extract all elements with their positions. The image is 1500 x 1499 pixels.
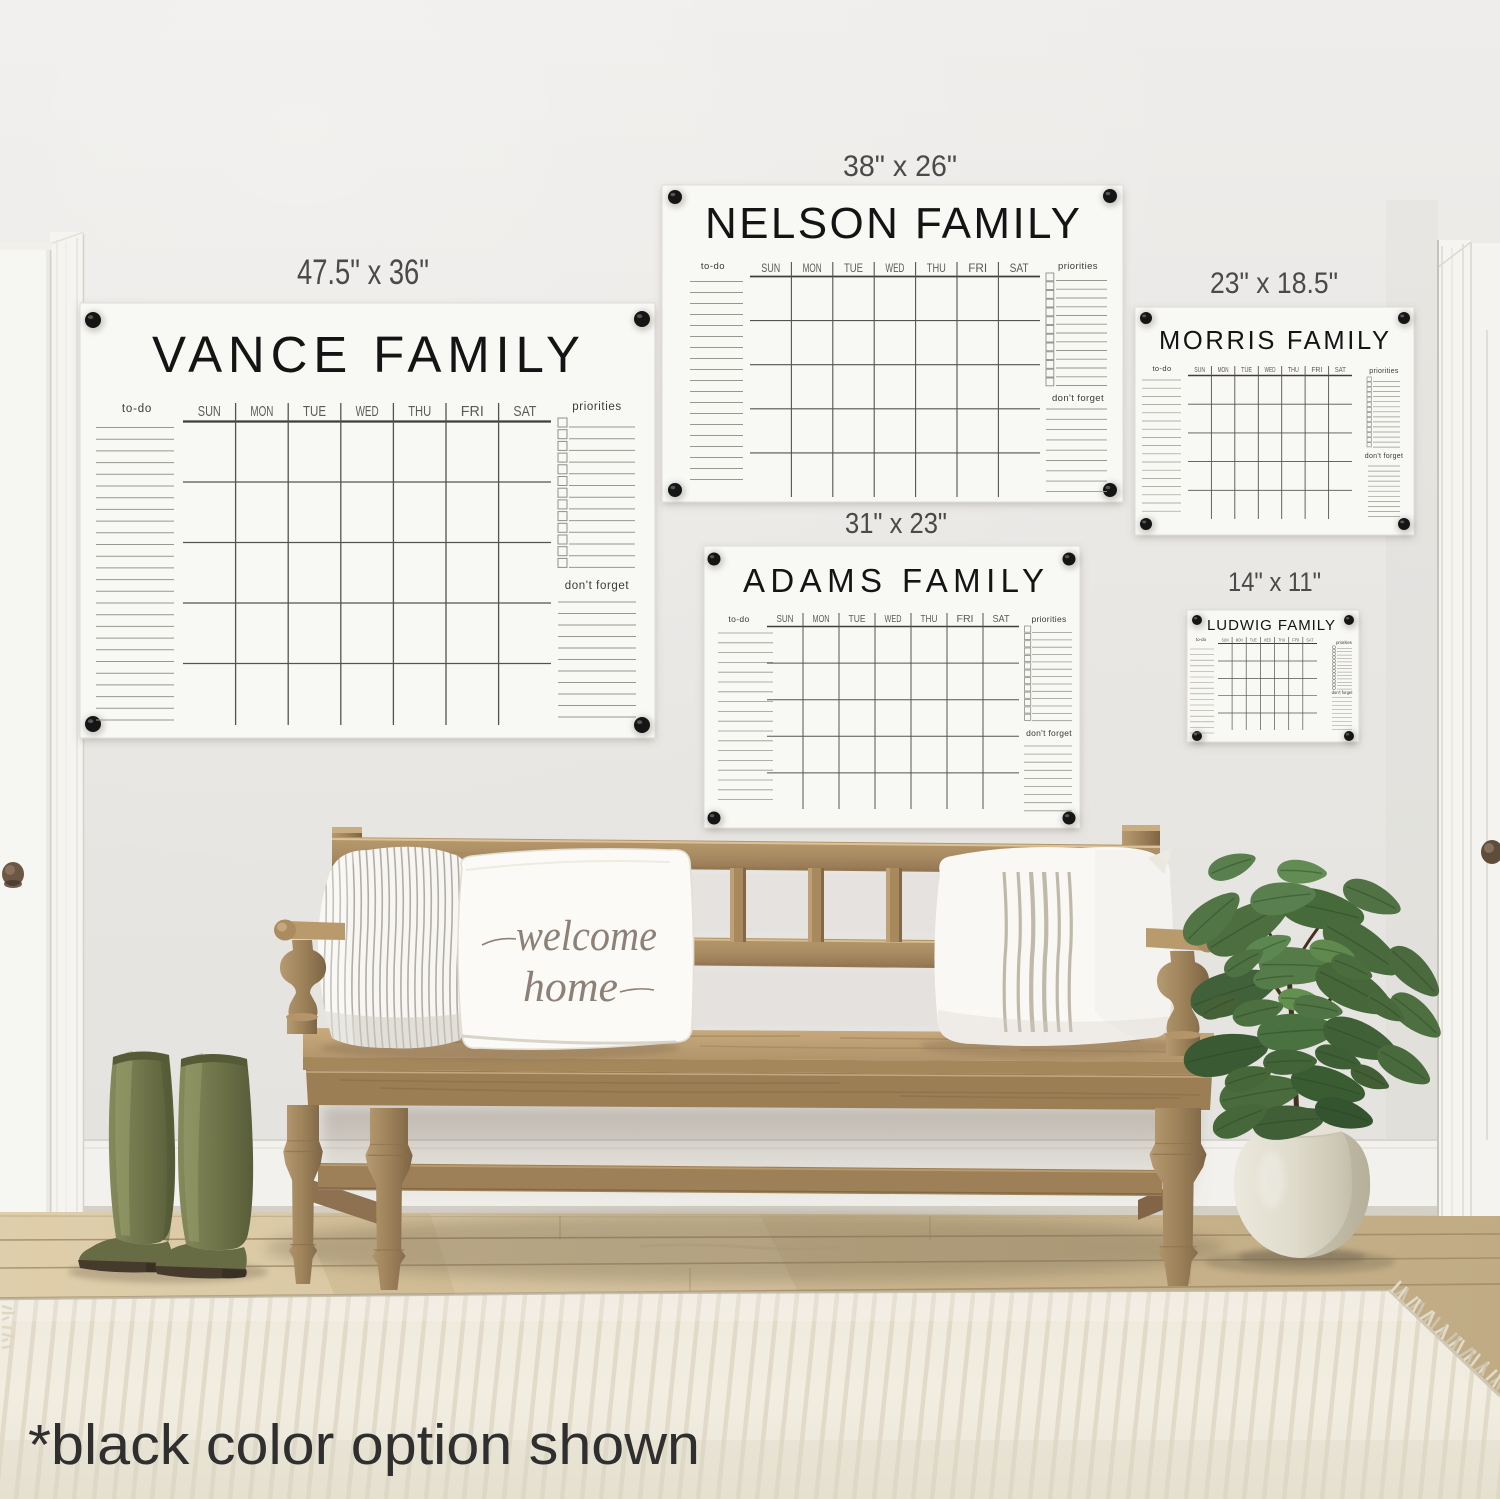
svg-text:SAT: SAT <box>993 613 1010 625</box>
svg-text:SUN: SUN <box>1194 367 1205 374</box>
svg-text:FRI: FRI <box>957 613 974 625</box>
svg-text:*black color option shown: *black color option shown <box>28 1413 700 1477</box>
svg-text:to-do: to-do <box>122 403 152 415</box>
svg-text:MON: MON <box>1236 638 1243 643</box>
svg-text:THU: THU <box>408 403 431 420</box>
svg-text:WED: WED <box>1264 638 1271 643</box>
svg-text:don't forget: don't forget <box>1332 690 1354 695</box>
svg-text:FRI: FRI <box>1292 638 1299 643</box>
svg-text:SUN: SUN <box>198 403 221 420</box>
svg-text:THU: THU <box>921 613 938 625</box>
svg-text:VANCE FAMILY: VANCE FAMILY <box>152 326 580 383</box>
svg-text:TUE: TUE <box>303 403 326 420</box>
svg-text:MON: MON <box>813 613 830 625</box>
svg-text:SUN: SUN <box>761 261 780 275</box>
svg-text:don't forget: don't forget <box>1026 728 1072 738</box>
svg-text:MON: MON <box>1218 367 1229 374</box>
svg-text:TUE: TUE <box>844 261 863 275</box>
svg-text:SUN: SUN <box>1222 638 1229 643</box>
svg-text:SAT: SAT <box>1335 367 1347 374</box>
svg-text:home: home <box>523 964 618 1011</box>
svg-text:TUE: TUE <box>849 613 866 625</box>
svg-text:NELSON FAMILY: NELSON FAMILY <box>705 199 1080 248</box>
svg-text:MON: MON <box>803 261 822 275</box>
svg-text:welcome: welcome <box>516 913 657 960</box>
svg-text:47.5" x 36": 47.5" x 36" <box>297 253 429 292</box>
svg-text:TUE: TUE <box>1241 367 1252 374</box>
svg-text:to-do: to-do <box>1152 364 1171 373</box>
svg-text:23" x 18.5": 23" x 18.5" <box>1210 267 1338 300</box>
svg-text:MON: MON <box>250 403 273 420</box>
svg-text:FRI: FRI <box>1311 367 1322 374</box>
svg-text:SAT: SAT <box>1306 638 1313 643</box>
svg-text:to-do: to-do <box>728 614 749 624</box>
svg-text:SUN: SUN <box>777 613 794 625</box>
svg-text:SAT: SAT <box>1010 261 1030 275</box>
svg-text:FRI: FRI <box>968 261 987 275</box>
svg-text:to-do: to-do <box>1196 637 1207 642</box>
svg-text:WED: WED <box>356 403 379 420</box>
svg-text:38" x 26": 38" x 26" <box>843 150 957 183</box>
svg-text:31" x 23": 31" x 23" <box>845 508 947 540</box>
svg-text:THU: THU <box>927 261 946 275</box>
svg-text:WED: WED <box>1265 367 1276 374</box>
svg-text:SAT: SAT <box>513 403 536 420</box>
svg-text:don't forget: don't forget <box>1052 393 1104 404</box>
svg-text:don't forget: don't forget <box>1365 453 1403 460</box>
svg-text:14" x 11": 14" x 11" <box>1228 567 1321 597</box>
svg-text:TUE: TUE <box>1250 638 1257 643</box>
svg-text:THU: THU <box>1278 638 1285 643</box>
svg-text:THU: THU <box>1288 367 1299 374</box>
svg-text:priorities: priorities <box>1031 614 1066 624</box>
svg-text:priorities: priorities <box>1369 368 1399 375</box>
svg-text:to-do: to-do <box>701 261 725 272</box>
svg-text:LUDWIG FAMILY: LUDWIG FAMILY <box>1207 617 1335 634</box>
svg-text:priorities: priorities <box>1336 640 1352 645</box>
svg-text:FRI: FRI <box>461 403 484 420</box>
svg-text:don't forget: don't forget <box>565 580 630 592</box>
svg-text:priorities: priorities <box>572 401 621 413</box>
svg-text:WED: WED <box>885 613 902 625</box>
svg-text:WED: WED <box>885 261 904 275</box>
svg-text:priorities: priorities <box>1058 261 1098 272</box>
